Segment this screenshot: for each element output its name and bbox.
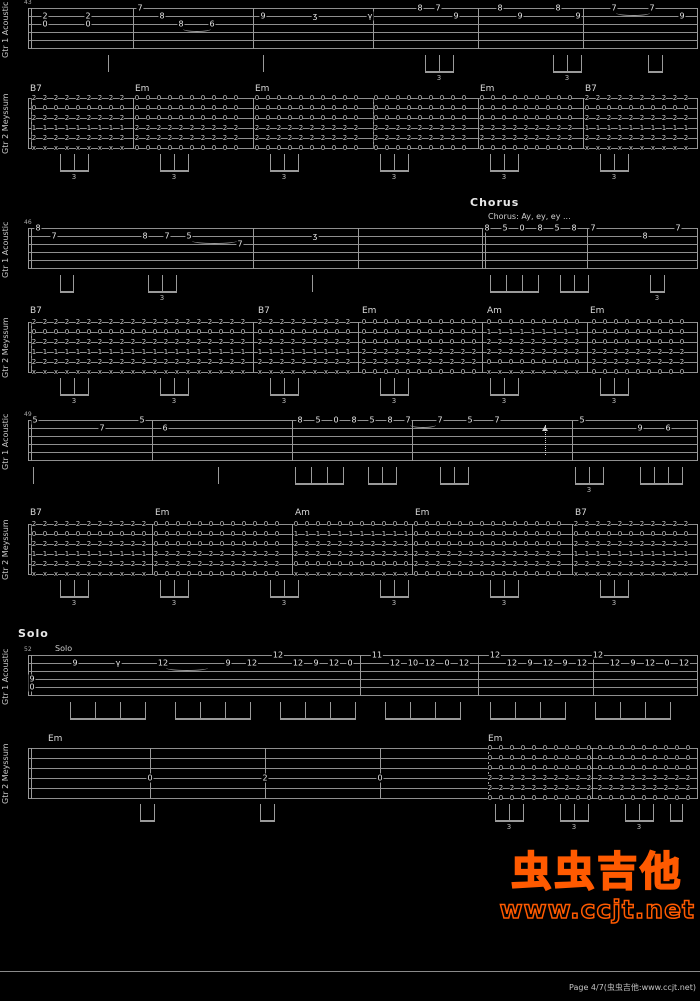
note-stem [490, 702, 491, 719]
strum-fret-digit: 2 [54, 338, 58, 346]
strum-fret-digit: 0 [625, 338, 629, 346]
strum-fret-digit: 0 [154, 520, 158, 528]
strum-fret-digit: 0 [142, 328, 146, 336]
strum-fret-digit: 0 [266, 94, 270, 102]
strum-fret-digit: 0 [546, 570, 550, 578]
strum-fret-digit: 0 [625, 328, 629, 336]
note-stem [523, 804, 524, 821]
fret-number: ʒ [312, 232, 319, 241]
strum-fret-digit: x [302, 368, 306, 376]
strum-fret-digit: 2 [153, 358, 157, 366]
strum-fret-digit: 2 [658, 348, 662, 356]
note-stem [312, 275, 313, 292]
strum-fret-digit: 1 [109, 550, 113, 558]
beam [425, 71, 454, 73]
strum-fret-digit: 0 [568, 114, 572, 122]
strum-fret-digit: 2 [255, 134, 259, 142]
strum-fret-digit: 2 [669, 358, 673, 366]
strum-fret-digit: 0 [165, 570, 169, 578]
strum-fret-digit: 2 [510, 784, 514, 792]
strum-fret-digit: 2 [43, 560, 47, 568]
strum-fret-digit: x [629, 144, 633, 152]
fret-number: 7 [236, 240, 243, 249]
strum-fret-digit: 2 [535, 134, 539, 142]
strum-fret-digit: 2 [520, 338, 524, 346]
strum-fret-digit: 1 [553, 328, 557, 336]
strum-fret-digit: 2 [585, 114, 589, 122]
note-stem [567, 55, 568, 72]
strum-fret-digit: 0 [609, 754, 613, 762]
strum-fret-digit: x [564, 368, 568, 376]
strum-fret-digit: 2 [142, 318, 146, 326]
note-stem [600, 154, 601, 171]
strum-fret-digit: 0 [255, 144, 259, 152]
strum-fret-digit: 1 [258, 348, 262, 356]
strum-fret-digit: x [629, 570, 633, 578]
strum-fret-digit: 0 [502, 94, 506, 102]
strum-fret-digit: 2 [186, 318, 190, 326]
strum-fret-digit: x [65, 144, 69, 152]
strum-fret-digit: x [153, 368, 157, 376]
strum-fret-digit: 2 [669, 348, 673, 356]
fret-number: 9 [678, 12, 685, 21]
strum-fret-digit: 2 [98, 338, 102, 346]
barline [28, 524, 29, 575]
strum-fret-digit: 2 [346, 338, 350, 346]
note-stem [565, 702, 566, 719]
strum-fret-digit: x [542, 368, 546, 376]
track-label-gtr1: Gtr 1 Acoustic [1, 404, 13, 480]
strum-fret-digit: 0 [568, 144, 572, 152]
strum-fret-digit: 0 [491, 530, 495, 538]
strum-fret-digit: 0 [146, 94, 150, 102]
strum-fret-digit: 0 [313, 328, 317, 336]
strum-fret-digit: 2 [498, 348, 502, 356]
strum-fret-digit: x [684, 144, 688, 152]
note-stem [648, 55, 649, 72]
strum-fret-digit: 2 [305, 550, 309, 558]
strum-fret-digit: 2 [574, 540, 578, 548]
strum-fret-digit: 0 [146, 114, 150, 122]
strum-fret-digit: 2 [382, 540, 386, 548]
note-stem [668, 467, 669, 484]
fret-number: 0 [84, 20, 91, 29]
fret-number: 9 [636, 424, 643, 433]
strum-fret-digit: 0 [179, 114, 183, 122]
strum-fret-digit: 2 [327, 540, 331, 548]
strum-fret-digit: 0 [462, 114, 466, 122]
fret-number: 2 [261, 774, 268, 783]
strum-fret-digit: 0 [371, 520, 375, 528]
strum-fret-digit: 0 [575, 318, 579, 326]
strum-fret-digit: 0 [404, 560, 408, 568]
strum-fret-digit: 0 [524, 530, 528, 538]
strum-fret-digit: 1 [43, 550, 47, 558]
strum-fret-digit: 2 [675, 784, 679, 792]
strum-fret-digit: 0 [43, 104, 47, 112]
page-footer: Page 4/7(虫虫吉他:www.ccjt.net) [569, 983, 696, 993]
strum-fret-digit: 2 [546, 550, 550, 558]
strum-fret-digit: 2 [640, 560, 644, 568]
strum-fret-digit: 2 [258, 338, 262, 346]
strum-fret-digit: 2 [607, 94, 611, 102]
note-stem [88, 154, 89, 171]
note-stem [640, 467, 641, 484]
strum-fret-digit: 0 [565, 754, 569, 762]
strum-fret-digit: 2 [396, 124, 400, 132]
strum-fret-digit: 0 [316, 520, 320, 528]
strum-fret-digit: 2 [208, 338, 212, 346]
strum-fret-digit: 0 [354, 114, 358, 122]
strum-fret-digit: 1 [487, 328, 491, 336]
strum-fret-digit: 0 [592, 368, 596, 376]
beam [280, 718, 356, 720]
strum-fret-digit: 2 [65, 560, 69, 568]
track-label-gtr2: Gtr 2 Meyssum [1, 736, 13, 812]
note-stem [518, 378, 519, 395]
strum-fret-digit: x [346, 368, 350, 376]
barline [478, 655, 479, 696]
strum-fret-digit: 2 [76, 318, 80, 326]
strum-fret-digit: 1 [662, 124, 666, 132]
note-stem [140, 804, 141, 821]
strum-fret-digit: 2 [491, 124, 495, 132]
note-stem [394, 154, 395, 171]
strum-fret-digit: 2 [651, 560, 655, 568]
strum-fret-digit: 0 [614, 328, 618, 336]
strum-fret-digit: 2 [642, 774, 646, 782]
strum-fret-digit: 2 [120, 94, 124, 102]
strum-fret-digit: 0 [109, 104, 113, 112]
strum-fret-digit: 2 [338, 550, 342, 558]
strum-fret-digit: 0 [521, 794, 525, 802]
strum-fret-digit: 2 [458, 550, 462, 558]
strum-fret-digit: 0 [680, 328, 684, 336]
note-stem [639, 804, 640, 821]
strum-fret-digit: 2 [447, 560, 451, 568]
strum-fret-digit: 2 [618, 114, 622, 122]
strum-fret-digit: 0 [614, 368, 618, 376]
fret-number: 8 [554, 4, 561, 13]
triplet-number: 3 [392, 174, 396, 181]
strum-fret-digit: x [531, 368, 535, 376]
note-stem [454, 467, 455, 484]
strum-fret-digit: 2 [43, 134, 47, 142]
fret-number: 7 [50, 232, 57, 241]
note-stem [270, 378, 271, 395]
strum-fret-digit: 1 [618, 550, 622, 558]
strum-fret-digit: 0 [146, 104, 150, 112]
strum-fret-digit: 2 [277, 124, 281, 132]
note-stem [440, 467, 441, 484]
strum-fret-digit: 0 [554, 744, 558, 752]
strum-fret-digit: 1 [607, 124, 611, 132]
strum-fret-digit: 2 [32, 560, 36, 568]
beam [270, 596, 299, 598]
strum-fret-digit: 2 [294, 540, 298, 548]
strum-fret-digit: 0 [587, 744, 591, 752]
strum-fret-digit: 2 [65, 520, 69, 528]
strum-fret-digit: 2 [65, 358, 69, 366]
strum-fret-digit: 0 [609, 764, 613, 772]
strum-fret-digit: 1 [291, 348, 295, 356]
strum-fret-digit: 0 [554, 764, 558, 772]
strum-fret-digit: 0 [425, 540, 429, 548]
beam [495, 820, 524, 822]
strum-fret-digit: 2 [480, 550, 484, 558]
strum-fret-digit: 0 [543, 754, 547, 762]
strum-fret-digit: 0 [565, 794, 569, 802]
strum-fret-digit: 0 [458, 540, 462, 548]
barline [587, 228, 588, 269]
strum-fret-digit: 0 [418, 144, 422, 152]
strum-fret-digit: 2 [557, 550, 561, 558]
strum-fret-digit: x [32, 144, 36, 152]
strum-fret-digit: 0 [395, 338, 399, 346]
strum-fret-digit: 2 [620, 784, 624, 792]
strum-fret-digit: 0 [510, 744, 514, 752]
strum-fret-digit: 0 [651, 104, 655, 112]
strum-fret-digit: 2 [462, 124, 466, 132]
strum-fret-digit: 0 [198, 520, 202, 528]
strum-fret-digit: 2 [629, 134, 633, 142]
strum-fret-digit: 2 [487, 348, 491, 356]
note-stem [176, 275, 177, 292]
strum-fret-digit: 1 [629, 550, 633, 558]
strum-fret-digit: 0 [135, 144, 139, 152]
strum-fret-digit: 0 [498, 358, 502, 366]
note-stem [515, 702, 516, 719]
barline [31, 228, 32, 269]
strum-fret-digit: 1 [640, 124, 644, 132]
strum-fret-digit: 0 [406, 328, 410, 336]
beam [70, 718, 146, 720]
strum-fret-digit: 0 [629, 104, 633, 112]
strum-fret-digit: 0 [546, 530, 550, 538]
strum-fret-digit: 2 [598, 774, 602, 782]
strum-fret-digit: 2 [662, 520, 666, 528]
strum-fret-digit: 2 [109, 520, 113, 528]
strum-fret-digit: 2 [120, 358, 124, 366]
strum-fret-digit: 2 [371, 550, 375, 558]
note-stem [522, 275, 523, 292]
strum-fret-digit: 1 [131, 348, 135, 356]
track-label-gtr1: Gtr 1 Acoustic [1, 639, 13, 715]
note-stem [600, 580, 601, 597]
strum-fret-digit: 0 [332, 144, 336, 152]
strum-fret-digit: 0 [598, 764, 602, 772]
strum-fret-digit: 0 [346, 328, 350, 336]
strum-fret-digit: 0 [201, 144, 205, 152]
strum-fret-digit: 1 [230, 348, 234, 356]
strum-fret-digit: x [291, 368, 295, 376]
strum-fret-digit: 2 [546, 124, 550, 132]
strum-fret-digit: 0 [557, 530, 561, 538]
strum-fret-digit: 2 [651, 134, 655, 142]
fret-number: 8 [570, 224, 577, 233]
fret-number: 9 [561, 659, 568, 668]
strum-fret-digit: x [673, 144, 677, 152]
strum-fret-digit: 2 [684, 540, 688, 548]
strum-fret-digit: 0 [396, 94, 400, 102]
strum-fret-digit: 2 [684, 560, 688, 568]
strum-fret-digit: 0 [469, 540, 473, 548]
strum-fret-digit: 1 [65, 550, 69, 558]
fret-number: 5 [368, 416, 375, 425]
tie-slur [410, 422, 436, 428]
strum-fret-digit: 2 [684, 114, 688, 122]
strum-fret-digit: 0 [186, 328, 190, 336]
strum-fret-digit: 2 [65, 94, 69, 102]
strum-fret-digit: 0 [574, 530, 578, 538]
strum-fret-digit: 0 [653, 764, 657, 772]
tie-slur [616, 10, 650, 16]
strum-fret-digit: 2 [120, 338, 124, 346]
strum-fret-digit: 2 [673, 114, 677, 122]
strum-fret-digit: 0 [54, 530, 58, 538]
strum-fret-digit: 2 [253, 560, 257, 568]
strum-fret-digit: 1 [109, 124, 113, 132]
watermark-site-url: www.ccjt.net [499, 896, 695, 923]
strum-fret-digit: 0 [253, 530, 257, 538]
note-stem [385, 702, 386, 719]
triplet-number: 3 [392, 398, 396, 405]
strum-fret-digit: 0 [436, 540, 440, 548]
barline [28, 98, 29, 149]
note-stem [614, 580, 615, 597]
strum-fret-digit: 0 [310, 104, 314, 112]
note-stem [145, 702, 146, 719]
strum-fret-digit: 2 [87, 560, 91, 568]
strum-fret-digit: 0 [631, 764, 635, 772]
strum-fret-digit: 1 [87, 348, 91, 356]
strum-fret-digit: 0 [535, 104, 539, 112]
strum-fret-digit: 0 [546, 520, 550, 528]
strum-fret-digit: 2 [87, 358, 91, 366]
note-stem [560, 804, 561, 821]
strum-fret-digit: 2 [439, 348, 443, 356]
fret-number: 0 [332, 416, 339, 425]
strum-fret-digit: 2 [291, 318, 295, 326]
barline [133, 8, 134, 49]
strum-fret-digit: 0 [629, 530, 633, 538]
fret-number: 12 [246, 659, 258, 668]
strum-fret-digit: 2 [223, 124, 227, 132]
strum-fret-digit: 2 [219, 318, 223, 326]
note-stem [218, 467, 219, 484]
strum-fret-digit: 0 [76, 530, 80, 538]
strum-fret-digit: 2 [32, 134, 36, 142]
strum-fret-digit: 2 [354, 134, 358, 142]
strum-fret-digit: 0 [487, 358, 491, 366]
strum-fret-digit: 2 [596, 540, 600, 548]
strum-fret-digit: 0 [587, 754, 591, 762]
strum-fret-digit: 0 [406, 368, 410, 376]
note-stem [653, 804, 654, 821]
beam [490, 394, 519, 396]
strum-fret-digit: 2 [131, 358, 135, 366]
strum-fret-digit: 2 [54, 114, 58, 122]
strum-fret-digit: 2 [65, 540, 69, 548]
fret-number: 0 [663, 659, 670, 668]
strum-fret-digit: 2 [302, 318, 306, 326]
fret-number: 8 [34, 224, 41, 233]
fret-number: 7 [434, 4, 441, 13]
strum-fret-digit: 2 [673, 134, 677, 142]
strum-fret-digit: 0 [488, 754, 492, 762]
strum-fret-digit: 0 [524, 540, 528, 548]
chord-label: B7 [258, 306, 270, 316]
triplet-number: 3 [72, 600, 76, 607]
strum-fret-digit: 2 [491, 550, 495, 558]
strum-fret-digit: 0 [374, 114, 378, 122]
strum-fret-digit: 0 [576, 744, 580, 752]
note-stem [439, 55, 440, 72]
strum-fret-digit: 1 [109, 348, 113, 356]
strum-fret-digit: 0 [425, 520, 429, 528]
strum-fret-digit: 2 [609, 774, 613, 782]
strum-fret-digit: 1 [294, 530, 298, 538]
strum-fret-digit: 2 [176, 550, 180, 558]
strum-fret-digit: 0 [620, 764, 624, 772]
strum-fret-digit: 2 [76, 114, 80, 122]
strum-fret-digit: 2 [32, 94, 36, 102]
beam [60, 596, 89, 598]
strum-fret-digit: 2 [32, 540, 36, 548]
triplet-number: 3 [172, 174, 176, 181]
barline [358, 228, 359, 269]
strum-fret-digit: 0 [299, 94, 303, 102]
strum-fret-digit: 2 [673, 560, 677, 568]
note-stem [664, 275, 665, 292]
strum-fret-digit: x [131, 570, 135, 578]
note-stem [654, 467, 655, 484]
beam [140, 820, 155, 822]
strum-fret-digit: 0 [212, 144, 216, 152]
strum-fret-digit: 2 [131, 520, 135, 528]
strum-fret-digit: 0 [509, 318, 513, 326]
note-stem [160, 378, 161, 395]
note-stem [620, 702, 621, 719]
strum-fret-digit: x [76, 368, 80, 376]
strum-fret-digit: 0 [521, 754, 525, 762]
beam [270, 394, 299, 396]
strum-fret-digit: 0 [220, 530, 224, 538]
note-stem [200, 702, 201, 719]
strum-fret-digit: 0 [154, 570, 158, 578]
fret-number: 7 [589, 224, 596, 233]
note-stem [284, 378, 285, 395]
strum-fret-digit: 2 [142, 358, 146, 366]
strum-fret-digit: 1 [673, 550, 677, 558]
strum-fret-digit: 2 [120, 520, 124, 528]
strum-fret-digit: 2 [406, 358, 410, 366]
note-stem [410, 702, 411, 719]
strum-fret-digit: x [585, 144, 589, 152]
strum-fret-digit: 0 [510, 794, 514, 802]
strum-fret-digit: 2 [43, 358, 47, 366]
strum-fret-digit: 0 [553, 358, 557, 366]
strum-fret-digit: 0 [198, 530, 202, 538]
fret-number: 0 [146, 774, 153, 783]
strum-fret-digit: 0 [223, 144, 227, 152]
beam [648, 71, 663, 73]
chord-label: Em [135, 84, 149, 94]
strum-fret-digit: 2 [461, 348, 465, 356]
strum-fret-digit: 2 [535, 560, 539, 568]
strum-fret-digit: 0 [425, 570, 429, 578]
strum-fret-digit: 0 [65, 530, 69, 538]
